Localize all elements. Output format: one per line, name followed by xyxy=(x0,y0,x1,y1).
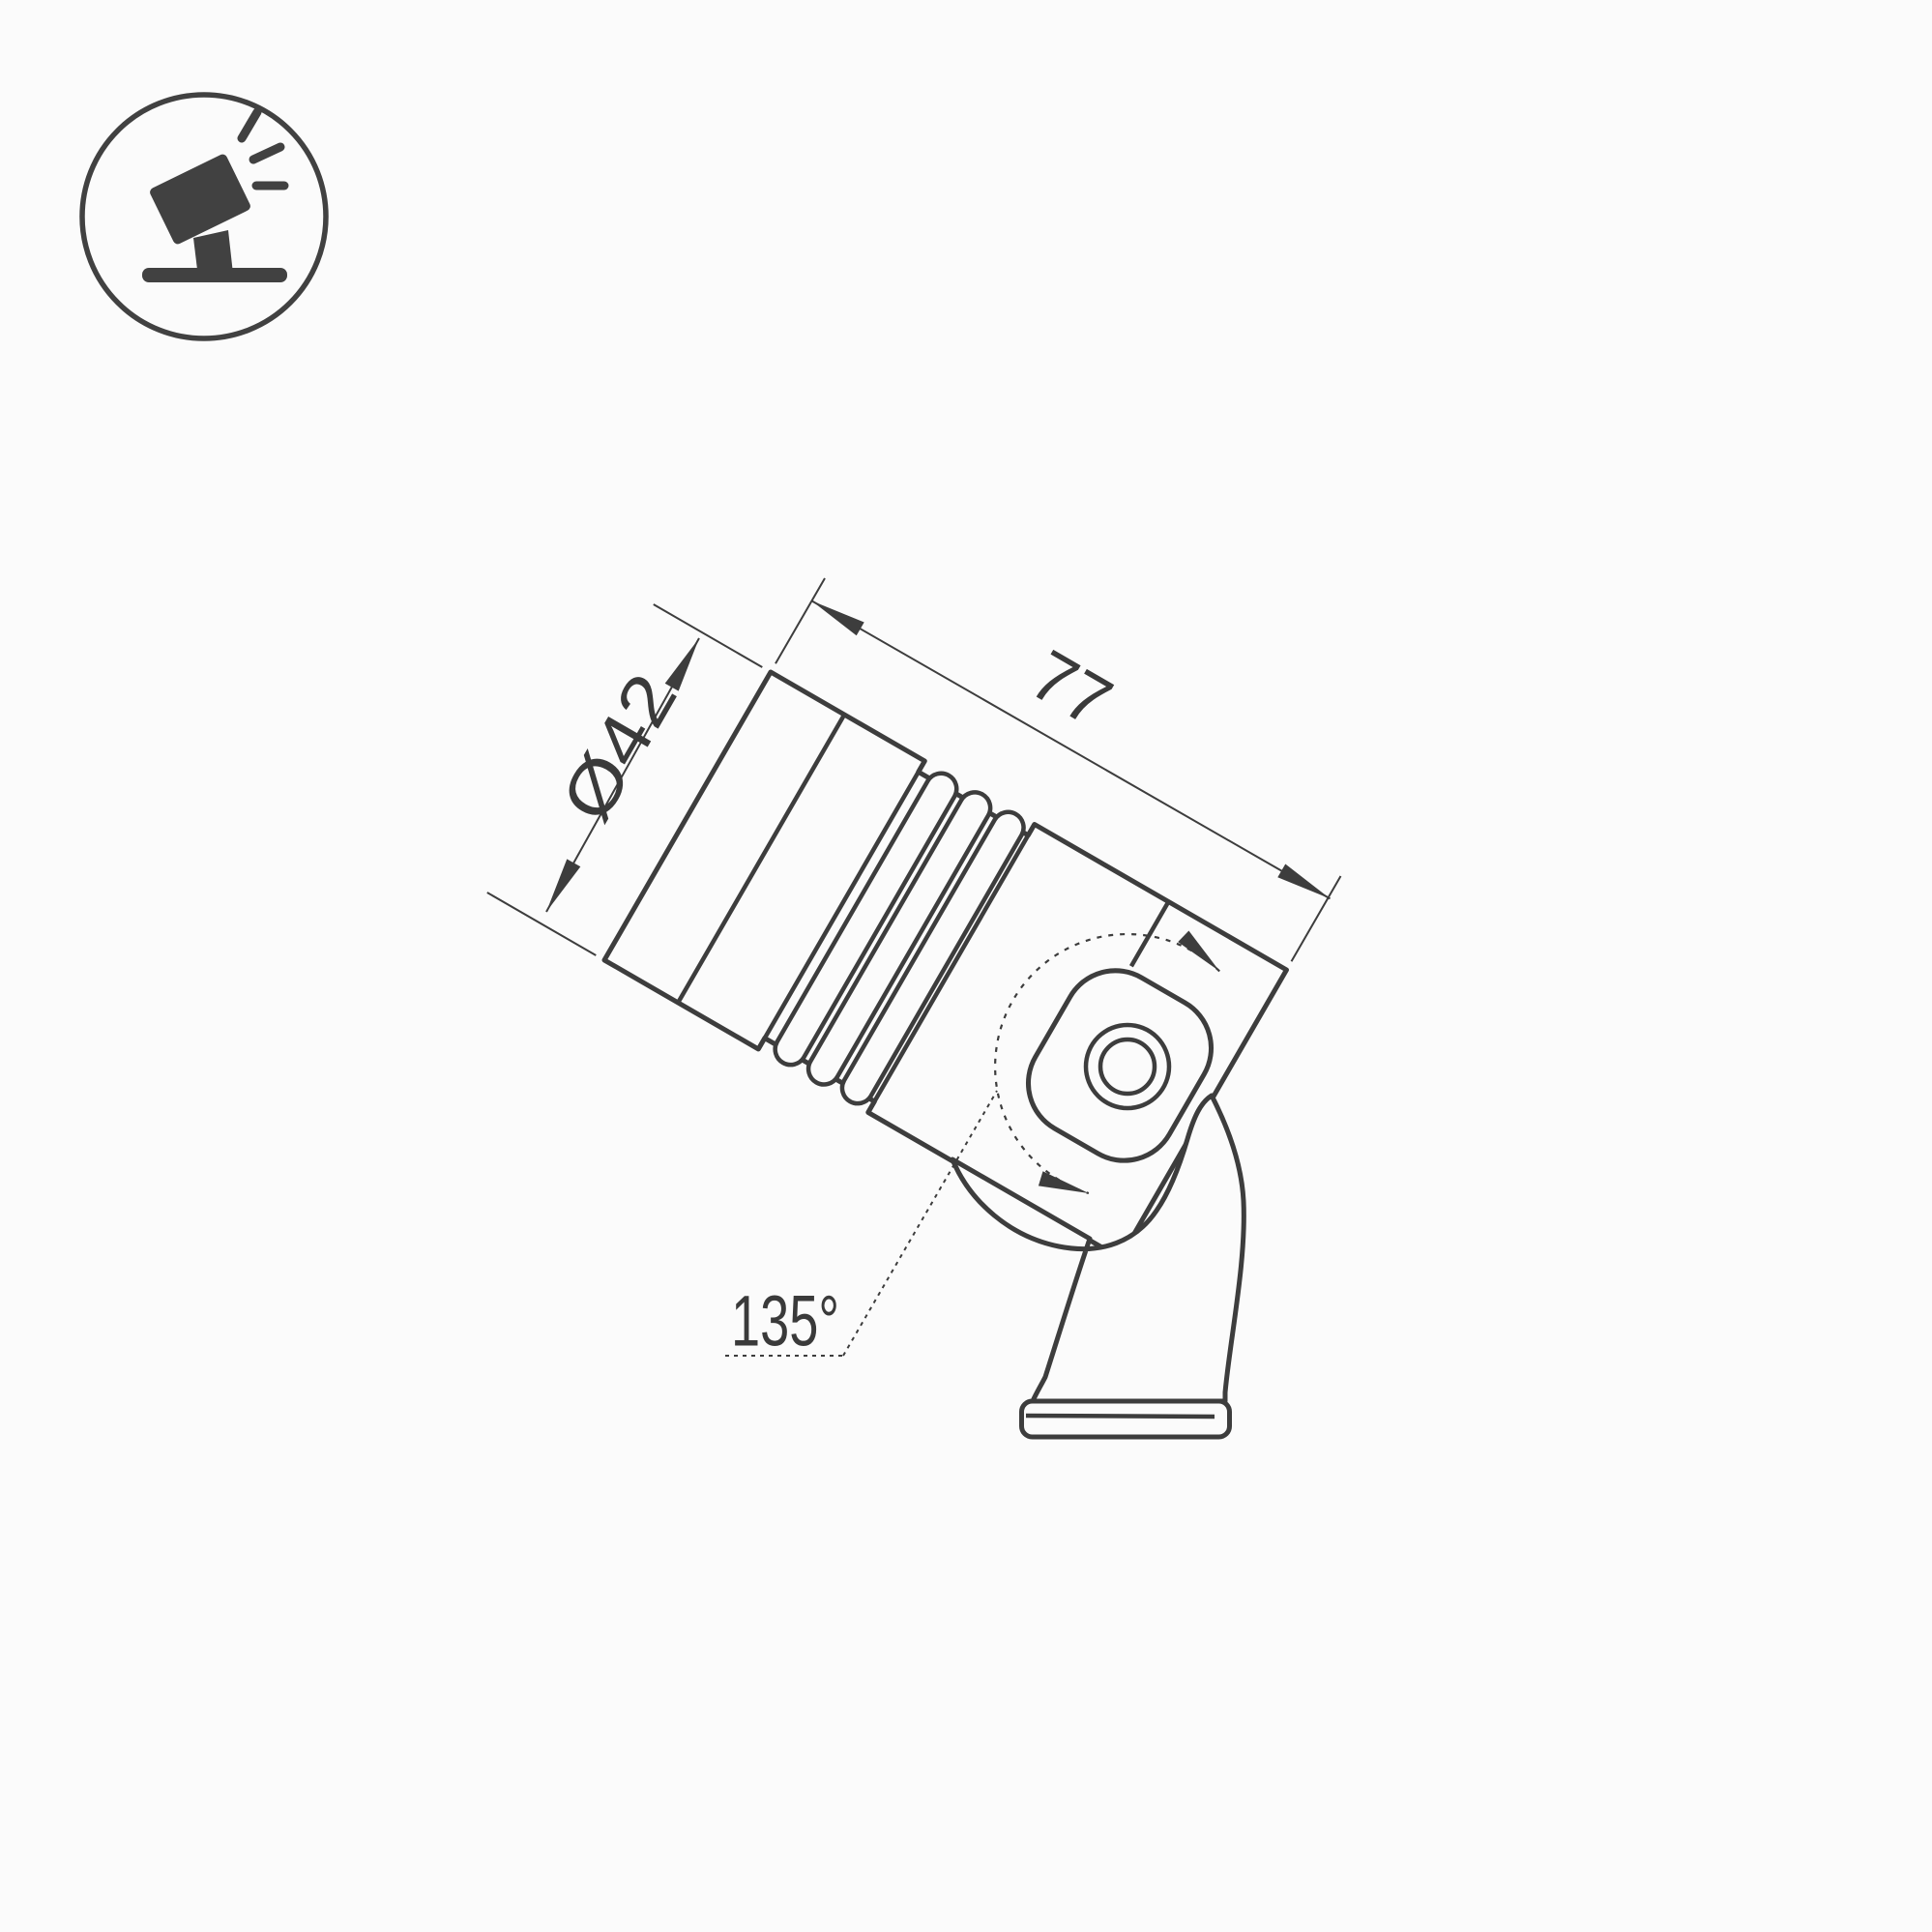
foot-edge-line xyxy=(1026,1416,1215,1417)
spotlight-head xyxy=(148,153,251,246)
diameter-extension-line-bottom xyxy=(487,893,597,955)
length-extension-line-left xyxy=(776,578,825,663)
pivot-bolt-circle xyxy=(1100,1039,1155,1094)
swivel-angle-label: 135° xyxy=(731,1281,839,1361)
length-label: 77 xyxy=(1018,634,1126,743)
spotlight-glyph xyxy=(142,112,287,282)
dimension-drawing-canvas: 135° Ø42 77 xyxy=(0,0,1932,1932)
length-arrow-right xyxy=(1277,864,1330,899)
diameter-arrow-top xyxy=(665,638,699,691)
spotlight-base xyxy=(142,268,287,282)
tilted-spotlight-icon xyxy=(82,95,326,338)
diameter-extension-line-top xyxy=(654,604,763,667)
bracket-foot xyxy=(1022,1401,1230,1437)
length-arrow-left xyxy=(812,600,864,635)
diameter-label: Ø42 xyxy=(545,660,692,834)
diameter-arrow-bottom xyxy=(546,859,580,912)
page: 135° Ø42 77 xyxy=(0,0,1932,1932)
light-rays-icon xyxy=(242,112,284,186)
